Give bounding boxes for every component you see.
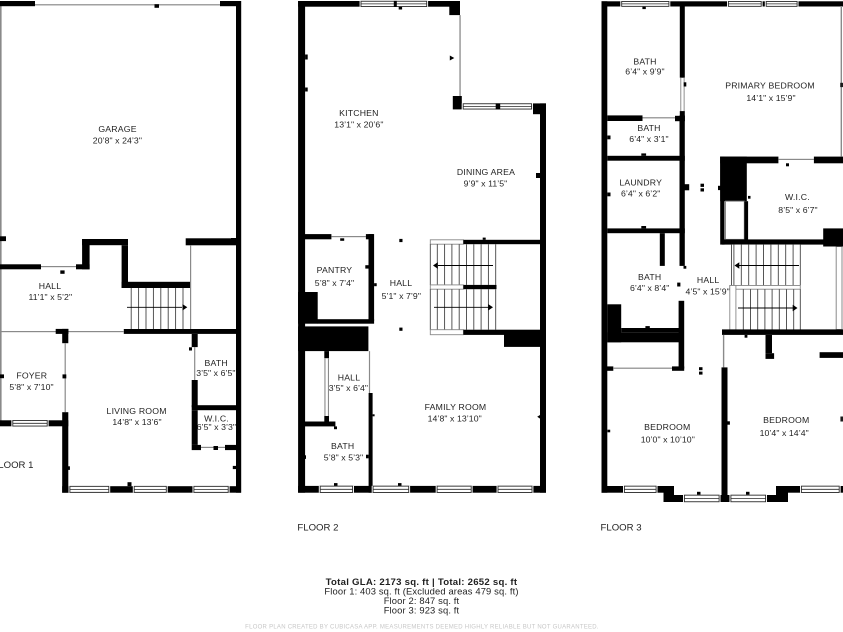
svg-text:14’8" x 13’10": 14’8" x 13’10" — [428, 414, 482, 424]
svg-text:BATH: BATH — [633, 56, 656, 66]
svg-text:BEDROOM: BEDROOM — [763, 415, 809, 425]
svg-text:DINING AREA: DINING AREA — [457, 167, 515, 177]
svg-text:6’4" x 6’2": 6’4" x 6’2" — [621, 188, 660, 198]
svg-text:FLOOR 3: FLOOR 3 — [601, 523, 642, 534]
svg-text:3’5" x 6’5": 3’5" x 6’5" — [196, 368, 235, 378]
svg-text:5’8" x 7’4": 5’8" x 7’4" — [315, 278, 354, 288]
svg-text:5’8" x 7’10": 5’8" x 7’10" — [9, 382, 53, 392]
svg-text:FAMILY ROOM: FAMILY ROOM — [425, 402, 487, 412]
svg-text:BATH: BATH — [205, 358, 228, 368]
svg-text:Floor 3: 923 sq. ft: Floor 3: 923 sq. ft — [384, 604, 460, 615]
svg-text:FLOOR PLAN CREATED BY CUBICASA: FLOOR PLAN CREATED BY CUBICASA APP. MEAS… — [245, 624, 599, 630]
svg-text:9’9" x 11’5": 9’9" x 11’5" — [464, 179, 508, 189]
svg-text:BATH: BATH — [331, 441, 354, 451]
svg-text:LAUNDRY: LAUNDRY — [619, 178, 662, 188]
svg-text:5’1" x 7’9": 5’1" x 7’9" — [382, 291, 421, 301]
svg-text:FLOOR 2: FLOOR 2 — [297, 523, 338, 534]
svg-text:14’1" x 15’9": 14’1" x 15’9" — [746, 93, 795, 103]
svg-text:PRIMARY BEDROOM: PRIMARY BEDROOM — [725, 81, 815, 91]
svg-text:14’8" x 13’6": 14’8" x 13’6" — [112, 417, 161, 427]
svg-text:FOYER: FOYER — [16, 370, 47, 380]
svg-text:W.I.C.: W.I.C. — [785, 192, 810, 202]
svg-text:6’4" x 8’4": 6’4" x 8’4" — [630, 283, 669, 293]
svg-text:HALL: HALL — [338, 373, 361, 383]
svg-text:BATH: BATH — [637, 123, 660, 133]
svg-text:FLOOR 1: FLOOR 1 — [0, 460, 33, 471]
svg-text:5’8" x 5’3": 5’8" x 5’3" — [324, 452, 363, 462]
svg-text:20’8" x 24’3": 20’8" x 24’3" — [93, 136, 142, 146]
svg-text:6’5" x 3’3": 6’5" x 3’3" — [197, 422, 236, 432]
svg-text:HALL: HALL — [39, 281, 62, 291]
svg-text:BEDROOM: BEDROOM — [644, 422, 690, 432]
svg-text:6’4" x 3’1": 6’4" x 3’1" — [629, 134, 668, 144]
svg-text:BATH: BATH — [638, 272, 661, 282]
svg-text:KITCHEN: KITCHEN — [339, 108, 379, 118]
svg-text:HALL: HALL — [697, 275, 720, 285]
svg-text:6’4" x 9’9": 6’4" x 9’9" — [625, 66, 664, 76]
svg-text:PANTRY: PANTRY — [317, 265, 353, 275]
svg-text:10’4" x 14’4": 10’4" x 14’4" — [760, 428, 809, 438]
svg-text:10’0" x 10’10": 10’0" x 10’10" — [641, 434, 695, 444]
svg-text:13’1" x 20’6": 13’1" x 20’6" — [334, 119, 383, 129]
svg-text:GARAGE: GARAGE — [98, 124, 136, 134]
svg-text:3’5" x 6’4": 3’5" x 6’4" — [329, 383, 368, 393]
svg-text:8’5" x 6’7": 8’5" x 6’7" — [778, 205, 817, 215]
svg-text:LIVING ROOM: LIVING ROOM — [107, 406, 167, 416]
svg-text:HALL: HALL — [390, 278, 413, 288]
svg-text:11’1" x 5’2": 11’1" x 5’2" — [28, 292, 72, 302]
svg-text:4’5" x 15’9": 4’5" x 15’9" — [686, 287, 730, 297]
